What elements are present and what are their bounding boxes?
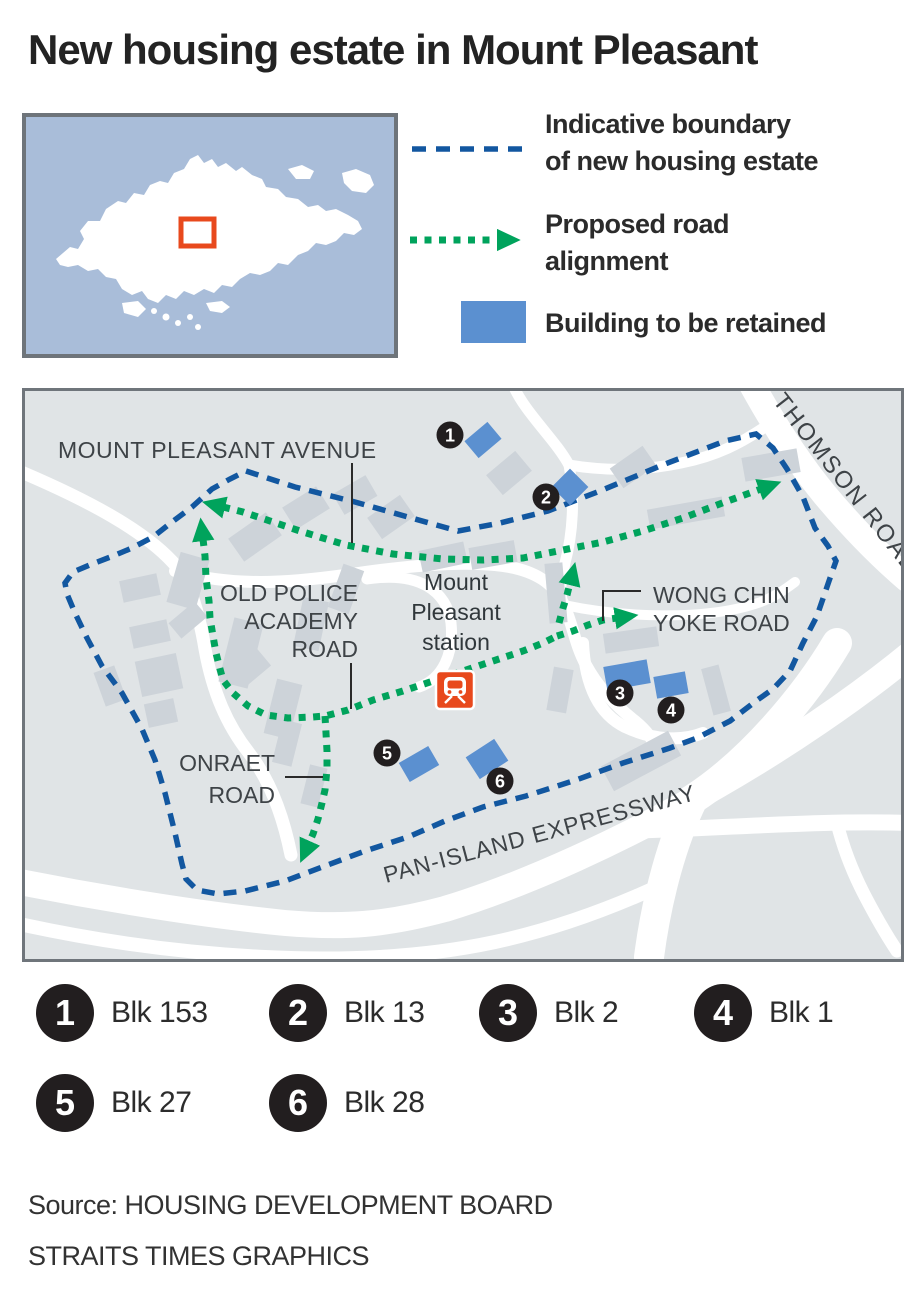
marker-1: 1 (437, 422, 464, 449)
singapore-map-icon (26, 117, 394, 354)
svg-text:YOKE ROAD: YOKE ROAD (653, 610, 790, 636)
ubin-island (288, 165, 314, 179)
svg-text:4: 4 (666, 701, 676, 721)
block-badge-3: 3 (479, 984, 537, 1042)
legend-road-line1: Proposed road (545, 206, 729, 243)
block-label-1: Blk 153 (111, 996, 208, 1030)
singapore-inset-map (22, 113, 398, 358)
block-key-item-1: 1 Blk 153 (36, 984, 208, 1042)
service-road-east (625, 822, 901, 831)
marker-3: 3 (607, 680, 634, 707)
legend-boundary-line1: Indicative boundary (545, 106, 818, 143)
southern-island (187, 314, 193, 320)
block-badge-4: 4 (694, 984, 752, 1042)
blk-27-building (399, 746, 439, 782)
road-arrow-sample (404, 226, 544, 259)
southern-island (151, 308, 157, 314)
block-key-item-6: 6 Blk 28 (269, 1074, 424, 1132)
block-badge-5: 5 (36, 1074, 94, 1132)
svg-text:ROAD: ROAD (209, 782, 275, 808)
sentosa-island (206, 301, 230, 313)
svg-text:5: 5 (382, 744, 392, 764)
mrt-station-icon (436, 671, 474, 709)
svg-text:2: 2 (541, 488, 551, 508)
legend-road-line2: alignment (545, 243, 729, 280)
jurong-island (122, 301, 146, 317)
label-mount-pleasant-avenue: MOUNT PLEASANT AVENUE (58, 437, 377, 463)
svg-text:ACADEMY: ACADEMY (244, 608, 358, 634)
map-canvas: 1 2 3 4 5 6 MOUNT PLEASANT AVENUE OLD PO… (25, 391, 901, 959)
main-map: 1 2 3 4 5 6 MOUNT PLEASANT AVENUE OLD PO… (22, 388, 904, 962)
svg-text:6: 6 (495, 772, 505, 792)
legend-building-label: Building to be retained (545, 305, 826, 342)
block-badge-1: 1 (36, 984, 94, 1042)
thomson-road (751, 391, 901, 579)
retained-building-sample (461, 301, 526, 343)
svg-text:3: 3 (615, 684, 625, 704)
block-label-2: Blk 13 (344, 996, 424, 1030)
singapore-island (56, 155, 362, 303)
blk-153-building (464, 422, 501, 458)
tekong-island (342, 169, 374, 193)
block-badge-2: 2 (269, 984, 327, 1042)
marker-6: 6 (487, 768, 514, 795)
legend-road-label: Proposed road alignment (545, 206, 729, 280)
southern-island (195, 324, 201, 330)
block-badge-6: 6 (269, 1074, 327, 1132)
svg-text:OLD POLICE: OLD POLICE (220, 580, 358, 606)
block-label-4: Blk 1 (769, 996, 833, 1030)
svg-text:ONRAET: ONRAET (179, 750, 275, 776)
southern-island (175, 320, 181, 326)
source-line: Source: HOUSING DEVELOPMENT BOARD (28, 1190, 553, 1221)
legend-boundary-label: Indicative boundary of new housing estat… (545, 106, 818, 180)
credit-line: STRAITS TIMES GRAPHICS (28, 1241, 369, 1272)
block-key-item-4: 4 Blk 1 (694, 984, 833, 1042)
legend-boundary-line2: of new housing estate (545, 143, 818, 180)
block-key-item-2: 2 Blk 13 (269, 984, 424, 1042)
label-mount-pleasant-station: Mount Pleasant station (411, 569, 501, 655)
boundary-line-sample (408, 142, 528, 161)
svg-text:1: 1 (445, 426, 455, 446)
svg-text:Mount: Mount (424, 569, 489, 595)
infographic: New housing estate in Mount Pleasant Ind… (0, 0, 920, 1296)
southern-island (163, 314, 170, 321)
svg-text:Pleasant: Pleasant (411, 599, 501, 625)
block-label-3: Blk 2 (554, 996, 618, 1030)
block-label-5: Blk 27 (111, 1086, 191, 1120)
block-key-item-3: 3 Blk 2 (479, 984, 618, 1042)
svg-text:ROAD: ROAD (292, 636, 358, 662)
svg-text:station: station (422, 629, 490, 655)
block-label-6: Blk 28 (344, 1086, 424, 1120)
page-title: New housing estate in Mount Pleasant (28, 26, 757, 74)
marker-2: 2 (533, 484, 560, 511)
ramp-road (837, 823, 897, 951)
marker-5: 5 (374, 740, 401, 767)
block-key-item-5: 5 Blk 27 (36, 1074, 191, 1132)
marker-4: 4 (658, 697, 685, 724)
svg-text:WONG CHIN: WONG CHIN (653, 582, 790, 608)
blk-1-building (653, 671, 688, 698)
